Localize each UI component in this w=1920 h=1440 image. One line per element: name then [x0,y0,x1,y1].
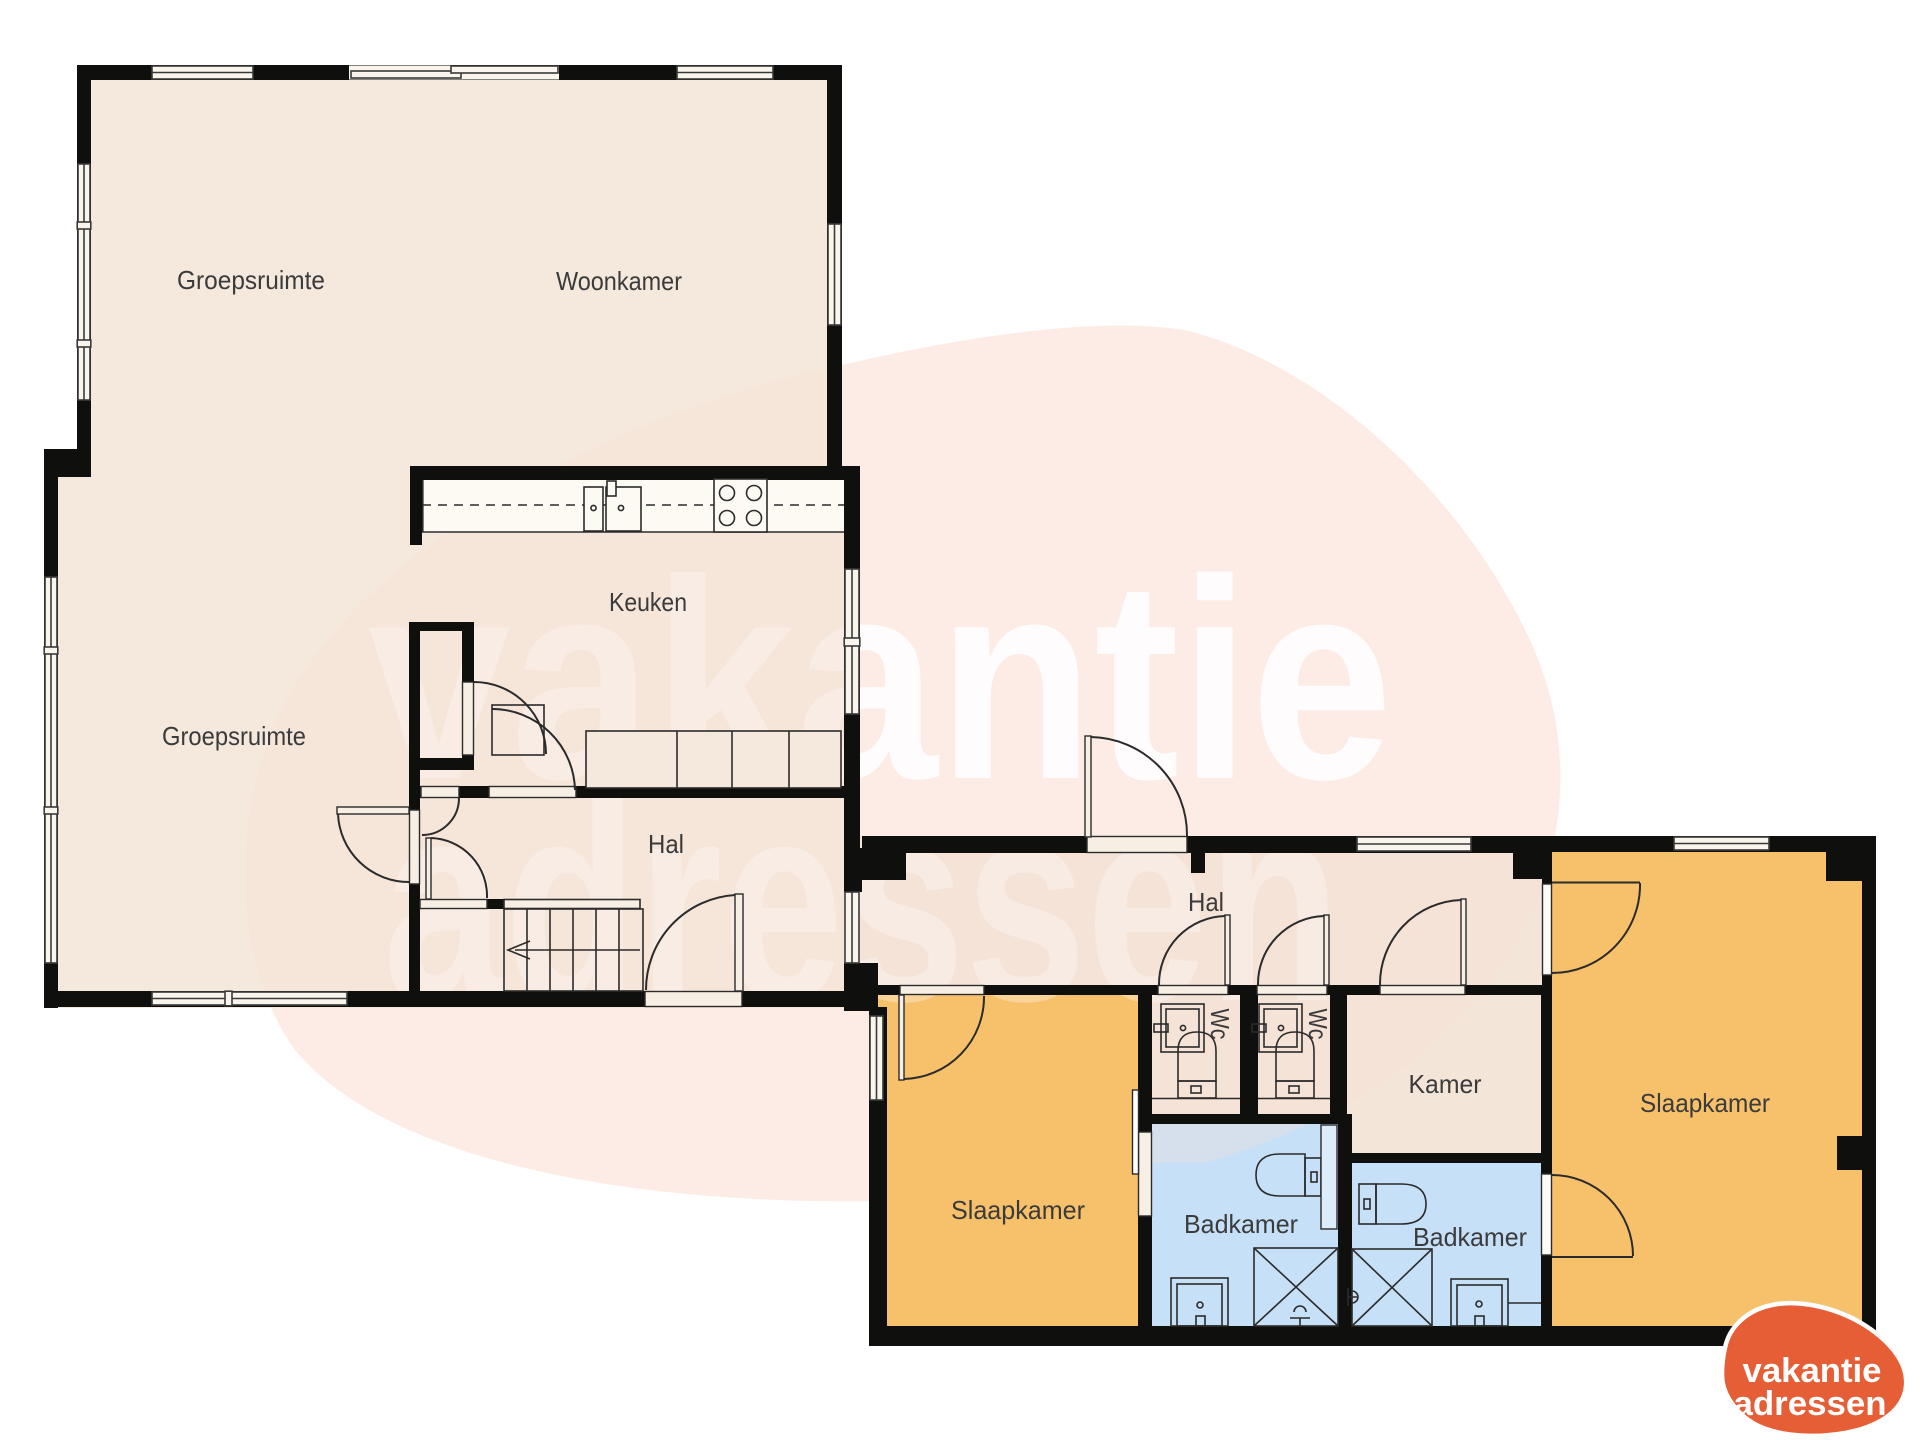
svg-text:adressen: adressen [1734,1385,1887,1423]
svg-text:Slaapkamer: Slaapkamer [951,1195,1085,1225]
svg-text:Woonkamer: Woonkamer [556,266,682,296]
svg-text:Slaapkamer: Slaapkamer [1640,1088,1770,1118]
svg-text:Kamer: Kamer [1409,1069,1482,1099]
svg-text:Keuken: Keuken [609,587,687,617]
svg-text:Groepsruimte: Groepsruimte [177,265,325,295]
svg-text:Wc: Wc [1303,1009,1333,1040]
svg-text:Hal: Hal [1188,887,1224,917]
svg-text:Wc: Wc [1205,1009,1235,1040]
svg-text:Badkamer: Badkamer [1413,1222,1527,1252]
svg-text:Groepsruimte: Groepsruimte [162,721,306,751]
svg-text:Hal: Hal [648,829,684,859]
svg-text:Badkamer: Badkamer [1184,1209,1298,1239]
